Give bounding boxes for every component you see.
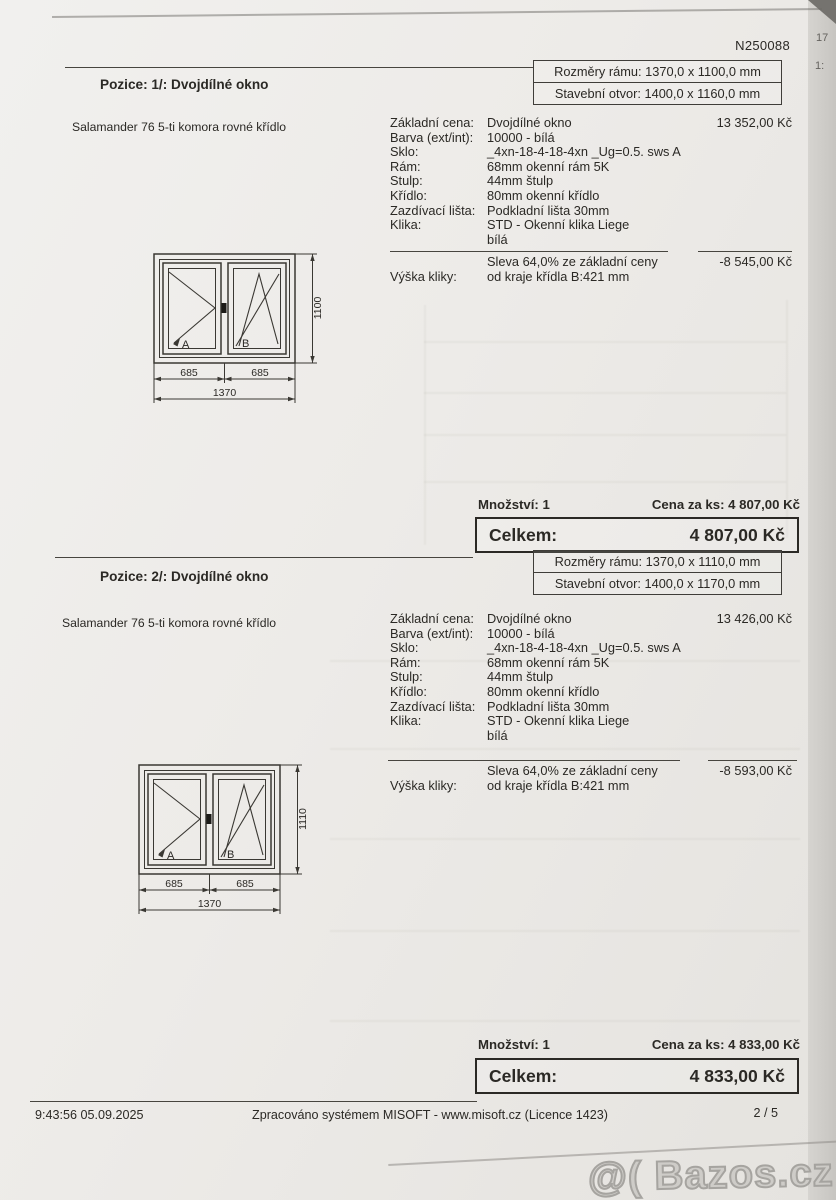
total-box: Celkem: 4 807,00 Kč [475,517,799,553]
spec-row: Stulp:44mm štulp [390,174,792,189]
dimension-lines [154,254,317,403]
dimension-lines [139,765,302,914]
sash-b-label: B [242,338,249,350]
section-divider [55,557,473,558]
size-box: Rozměry rámu: 1370,0 x 1110,0 mm Stavebn… [533,550,782,595]
spec-value: Dvojdílné okno [487,611,572,626]
bleedthrough-line [424,341,786,343]
handle-icon [222,303,227,313]
bleedthrough-line [424,392,786,394]
spec-label: Křídlo: [390,189,427,204]
spec-label: Klika: [390,714,421,729]
unit-price-value: Cena za ks: 4 807,00 Kč [652,497,800,512]
spec-price: 13 352,00 Kč [717,116,792,131]
section-divider [65,67,533,68]
unit-price-value: Cena za ks: 4 833,00 Kč [652,1037,800,1052]
spec-list: Základní cena:Dvojdílné okno13 352,00 Kč… [390,116,792,247]
sash-a-label: A [182,339,190,351]
spec-label: Zazdívací lišta: [390,204,475,219]
total-label: Celkem: [489,1066,557,1087]
spec-row: Rám:68mm okenní rám 5K [390,160,792,175]
dim-width-right: 685 [236,878,254,890]
footer-timestamp: 9:43:56 05.09.2025 [35,1108,144,1122]
spec-value: 44mm štulp [487,173,553,188]
quantity-row: Množství: 1 Cena za ks: 4 807,00 Kč [478,497,800,512]
spec-row: Klika:STD - Okenní klika Liege [390,714,792,729]
total-price: 4 833,00 Kč [690,1066,785,1087]
dim-width-right: 685 [251,367,269,379]
handle-height-row: Výška kliky:od kraje křídla B:421 mm [390,269,792,284]
frame-size-value: Rozměry rámu: 1370,0 x 1110,0 mm [534,551,781,572]
footer-divider [30,1101,477,1102]
quantity-value: Množství: 1 [478,1037,550,1052]
spec-row: Barva (ext/int):10000 - bílá [390,131,792,146]
turn-symbol-a [169,272,215,343]
discount-divider [388,760,680,761]
opening-size-value: Stavební otvor: 1400,0 x 1160,0 mm [534,82,781,104]
sash-a-label: A [167,850,175,862]
spec-label: Základní cena: [390,612,474,627]
bazos-watermark: @( Bazos.cz [588,1150,834,1200]
total-label: Celkem: [489,525,557,546]
spec-row: Zazdívací lišta:Podkladní lišta 30mm [390,700,792,715]
spec-row: Zazdívací lišta:Podkladní lišta 30mm [390,204,792,219]
spec-label: Sklo: [390,145,418,160]
spec-row: Stulp:44mm štulp [390,670,792,685]
quantity-value: Množství: 1 [478,497,550,512]
spec-list: Základní cena:Dvojdílné okno13 426,00 Kč… [390,612,792,743]
bleedthrough-line [330,930,800,932]
dim-width-left: 685 [180,367,198,379]
spec-value: 80mm okenní křídlo [487,188,599,203]
photo-background: N250088 Rozměry rámu: 1370,0 x 1100,0 mm… [0,0,836,1200]
spec-row: Sklo:_4xn-18-4-18-4xn _Ug=0.5. sws A [390,145,792,160]
bleedthrough-line [330,748,800,750]
dim-width-left: 685 [165,878,183,890]
discount-price-divider [698,251,792,252]
spec-label: Barva (ext/int): [390,627,473,642]
footer-page-number: 2 / 5 [753,1106,778,1120]
spec-value: 10000 - bílá [487,130,555,145]
spec-label: Rám: [390,656,421,671]
spec-label: Stulp: [390,670,423,685]
discount-price: -8 593,00 Kč [719,763,792,778]
spec-label: Křídlo: [390,685,427,700]
spec-row: Základní cena:Dvojdílné okno13 426,00 Kč [390,612,792,627]
spec-value: Podkladní lišta 30mm [487,699,609,714]
spec-value: STD - Okenní klika Liege [487,713,629,728]
product-name: Salamander 76 5-ti komora rovné křídlo [72,120,286,134]
bleedthrough-line [330,1020,800,1022]
discount-label-wrap: Sleva 64,0% ze základní ceny-8 545,00 Kč [390,254,792,269]
spec-row: Sklo:_4xn-18-4-18-4xn _Ug=0.5. sws A [390,641,792,656]
spec-row: Rám:68mm okenní rám 5K [390,656,792,671]
opening-size-value: Stavební otvor: 1400,0 x 1170,0 mm [534,572,781,594]
spec-value: 44mm štulp [487,669,553,684]
discount-row: Sleva 64,0% ze základní ceny-8 593,00 Kč… [390,763,792,793]
spec-price: 13 426,00 Kč [717,612,792,627]
spec-row: bílá [390,729,792,744]
footer-generator: Zpracováno systémem MISOFT - www.misoft.… [228,1108,632,1122]
frame-size-value: Rozměry rámu: 1370,0 x 1100,0 mm [534,61,781,82]
total-box: Celkem: 4 833,00 Kč [475,1058,799,1094]
document-number: N250088 [600,38,790,53]
spec-value: _4xn-18-4-18-4xn _Ug=0.5. sws A [487,640,681,655]
dim-height: 1100 [312,297,324,320]
spec-label: Zazdívací lišta: [390,700,475,715]
product-name: Salamander 76 5-ti komora rovné křídlo [62,616,276,630]
handle-height-label: Výška kliky: [390,269,457,284]
discount-price: -8 545,00 Kč [719,254,792,269]
dim-width-total: 1370 [213,387,237,399]
spec-label: Stulp: [390,174,423,189]
position-title: Pozice: 2/: Dvojdílné okno [100,569,268,584]
size-box: Rozměry rámu: 1370,0 x 1100,0 mm Stavebn… [533,60,782,105]
document-page: N250088 Rozměry rámu: 1370,0 x 1100,0 mm… [0,0,808,1200]
spec-label: Základní cena: [390,116,474,131]
handle-height-row: Výška kliky:od kraje křídla B:421 mm [390,778,792,793]
dim-height: 1110 [297,808,309,830]
quantity-row: Množství: 1 Cena za ks: 4 833,00 Kč [478,1037,800,1052]
bleedthrough-line [424,481,786,483]
spec-value: 68mm okenní rám 5K [487,655,609,670]
underlying-sheet [808,0,836,1200]
sash-b-label: B [227,849,234,861]
edge-mark: 17 [816,32,828,44]
spec-value: STD - Okenní klika Liege [487,217,629,232]
discount-label: Sleva 64,0% ze základní ceny [487,254,658,269]
edge-mark: 1: [815,60,824,72]
spec-value: bílá [487,232,508,247]
spec-label: Klika: [390,218,421,233]
spec-value: Podkladní lišta 30mm [487,203,609,218]
spec-value: 10000 - bílá [487,626,555,641]
discount-divider [390,251,668,252]
discount-label-wrap: Sleva 64,0% ze základní ceny-8 593,00 Kč [390,763,792,778]
spec-value: Dvojdílné okno [487,115,572,130]
bleedthrough-line [424,434,786,436]
total-price: 4 807,00 Kč [690,525,785,546]
spec-row: bílá [390,233,792,248]
spec-value: bílá [487,728,508,743]
turn-symbol-a [154,783,200,854]
spec-value: _4xn-18-4-18-4xn _Ug=0.5. sws A [487,144,681,159]
spec-value: 80mm okenní křídlo [487,684,599,699]
handle-height-label: Výška kliky: [390,778,457,793]
spec-row: Základní cena:Dvojdílné okno13 352,00 Kč [390,116,792,131]
dim-width-total: 1370 [198,898,222,910]
window-diagram: A B 685 685 1370 1110 [131,761,309,923]
discount-row: Sleva 64,0% ze základní ceny-8 545,00 Kč… [390,254,792,284]
discount-price-divider [708,760,797,761]
spec-row: Klika:STD - Okenní klika Liege [390,218,792,233]
spec-row: Křídlo:80mm okenní křídlo [390,189,792,204]
spec-value: 68mm okenní rám 5K [487,159,609,174]
handle-icon [207,814,212,824]
window-diagram: A B 685 685 1370 1100 [146,250,324,412]
spec-row: Barva (ext/int):10000 - bílá [390,627,792,642]
spec-row: Křídlo:80mm okenní křídlo [390,685,792,700]
spec-label: Sklo: [390,641,418,656]
bleedthrough-line [330,838,800,840]
discount-label: Sleva 64,0% ze základní ceny [487,763,658,778]
position-title: Pozice: 1/: Dvojdílné okno [100,77,268,92]
spec-label: Barva (ext/int): [390,131,473,146]
spec-label: Rám: [390,160,421,175]
